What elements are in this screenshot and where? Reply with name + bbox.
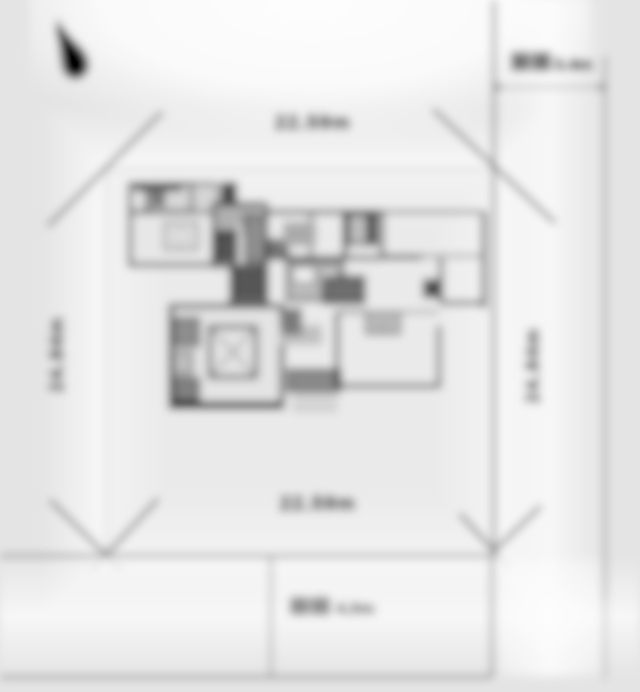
svg-text:22.59m: 22.59m <box>275 112 352 134</box>
svg-text:22.59m: 22.59m <box>280 493 357 515</box>
svg-text:24.84m: 24.84m <box>523 327 544 403</box>
svg-text:3.4m: 3.4m <box>554 55 593 74</box>
svg-text:24.84m: 24.84m <box>47 316 68 392</box>
svg-text:4.0m: 4.0m <box>336 599 375 618</box>
